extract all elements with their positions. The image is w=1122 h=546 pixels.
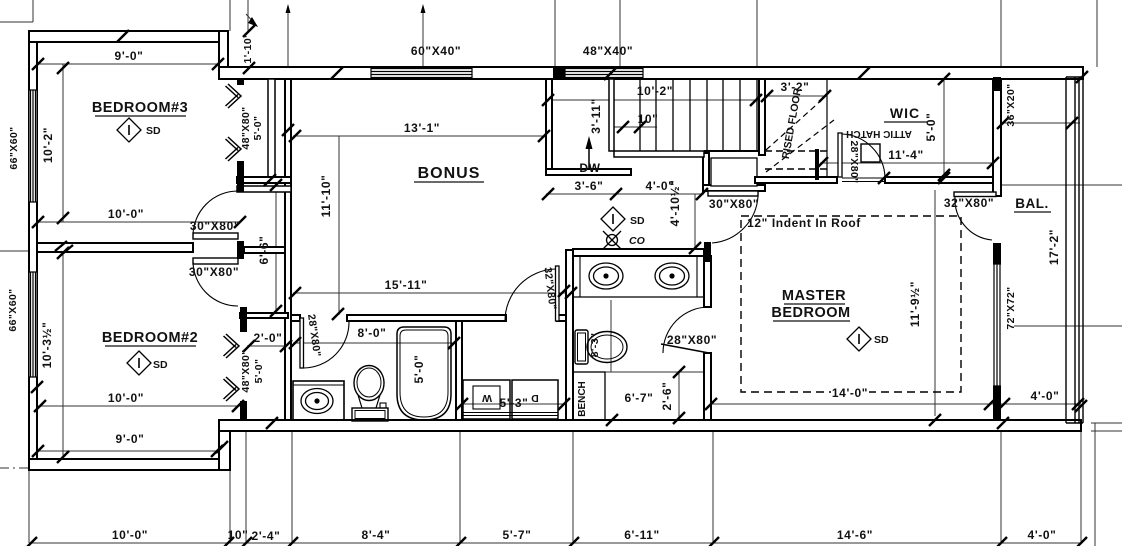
svg-text:3'-11": 3'-11" <box>589 98 603 134</box>
svg-text:10'-2": 10'-2" <box>41 127 55 163</box>
svg-text:5'-7": 5'-7" <box>503 528 532 542</box>
svg-text:3'-6": 3'-6" <box>575 179 604 193</box>
svg-text:BAL.: BAL. <box>1015 196 1049 211</box>
svg-text:10'-0": 10'-0" <box>112 528 148 542</box>
svg-text:12" Indent In Roof: 12" Indent In Roof <box>747 216 861 230</box>
svg-text:4'-0": 4'-0" <box>1028 528 1057 542</box>
svg-text:4'-0": 4'-0" <box>1031 389 1060 403</box>
svg-text:30"X80": 30"X80" <box>709 197 759 211</box>
svg-text:W: W <box>482 392 492 404</box>
svg-text:6'-11": 6'-11" <box>624 528 660 542</box>
svg-text:SD: SD <box>153 359 168 371</box>
svg-text:13'-1": 13'-1" <box>404 121 440 135</box>
svg-text:11'-9½": 11'-9½" <box>908 281 922 327</box>
svg-text:36"X20": 36"X20" <box>1005 83 1017 126</box>
svg-text:17'-2": 17'-2" <box>1047 229 1061 265</box>
svg-text:2'-6": 2'-6" <box>660 382 674 411</box>
svg-text:5'-0": 5'-0" <box>924 113 938 142</box>
svg-text:D: D <box>531 392 539 404</box>
svg-text:WIC: WIC <box>890 105 920 121</box>
svg-text:9'-0": 9'-0" <box>116 432 145 446</box>
svg-text:4'-10½": 4'-10½" <box>668 180 682 227</box>
svg-text:SD: SD <box>146 125 161 137</box>
svg-text:14'-6": 14'-6" <box>837 528 873 542</box>
svg-text:8'-3": 8'-3" <box>589 333 601 358</box>
svg-text:30"X80": 30"X80" <box>190 219 240 233</box>
svg-text:10'-0": 10'-0" <box>108 391 144 405</box>
svg-text:11'-4": 11'-4" <box>888 148 924 162</box>
svg-text:60"X40": 60"X40" <box>411 44 461 58</box>
svg-text:CO: CO <box>629 235 645 247</box>
svg-text:66"X60": 66"X60" <box>7 288 19 331</box>
svg-text:14'-0": 14'-0" <box>832 386 868 400</box>
svg-text:30"X80": 30"X80" <box>189 265 239 279</box>
svg-text:15'-11": 15'-11" <box>385 278 428 292</box>
svg-text:10'-3½": 10'-3½" <box>40 322 54 369</box>
svg-text:10'-2": 10'-2" <box>637 84 673 98</box>
svg-text:72"X72": 72"X72" <box>1005 286 1017 329</box>
svg-text:28"X80": 28"X80" <box>848 140 860 183</box>
svg-text:6'-6": 6'-6" <box>257 236 271 265</box>
svg-text:1'-10": 1'-10" <box>242 33 254 64</box>
svg-text:5'-0": 5'-0" <box>252 116 264 141</box>
svg-text:SD: SD <box>874 334 889 346</box>
svg-text:32"X80": 32"X80" <box>944 196 994 210</box>
svg-text:5'-3": 5'-3" <box>500 396 529 410</box>
svg-text:10": 10" <box>638 112 659 126</box>
svg-text:9'-0": 9'-0" <box>115 49 144 63</box>
svg-text:2'-4": 2'-4" <box>252 529 281 543</box>
svg-text:8'-0": 8'-0" <box>358 326 387 340</box>
svg-text:SD: SD <box>630 215 645 227</box>
svg-text:66"X60": 66"X60" <box>8 126 20 169</box>
svg-text:48"X40": 48"X40" <box>583 44 633 58</box>
svg-text:48"X80": 48"X80" <box>240 106 252 149</box>
svg-text:BEDROOM#3: BEDROOM#3 <box>92 100 188 116</box>
svg-text:MASTER: MASTER <box>782 288 846 304</box>
svg-text:ATTIC HATCH: ATTIC HATCH <box>846 128 912 139</box>
svg-text:10": 10" <box>228 528 249 542</box>
svg-text:8'-4": 8'-4" <box>362 528 391 542</box>
svg-text:6'-7": 6'-7" <box>625 391 654 405</box>
svg-text:BEDROOM: BEDROOM <box>771 305 850 321</box>
svg-text:11'-10": 11'-10" <box>319 175 333 218</box>
svg-text:5'-0": 5'-0" <box>253 359 265 384</box>
svg-text:2'-0": 2'-0" <box>254 331 283 345</box>
svg-text:BENCH: BENCH <box>577 381 588 417</box>
svg-text:BONUS: BONUS <box>418 165 481 182</box>
svg-text:28"X80": 28"X80" <box>667 333 717 347</box>
svg-text:10'-0": 10'-0" <box>108 207 144 221</box>
svg-text:5'-0": 5'-0" <box>412 355 426 384</box>
svg-text:DW: DW <box>579 161 600 175</box>
svg-text:BEDROOM#2: BEDROOM#2 <box>102 330 198 346</box>
svg-text:48"X80": 48"X80" <box>240 349 252 392</box>
